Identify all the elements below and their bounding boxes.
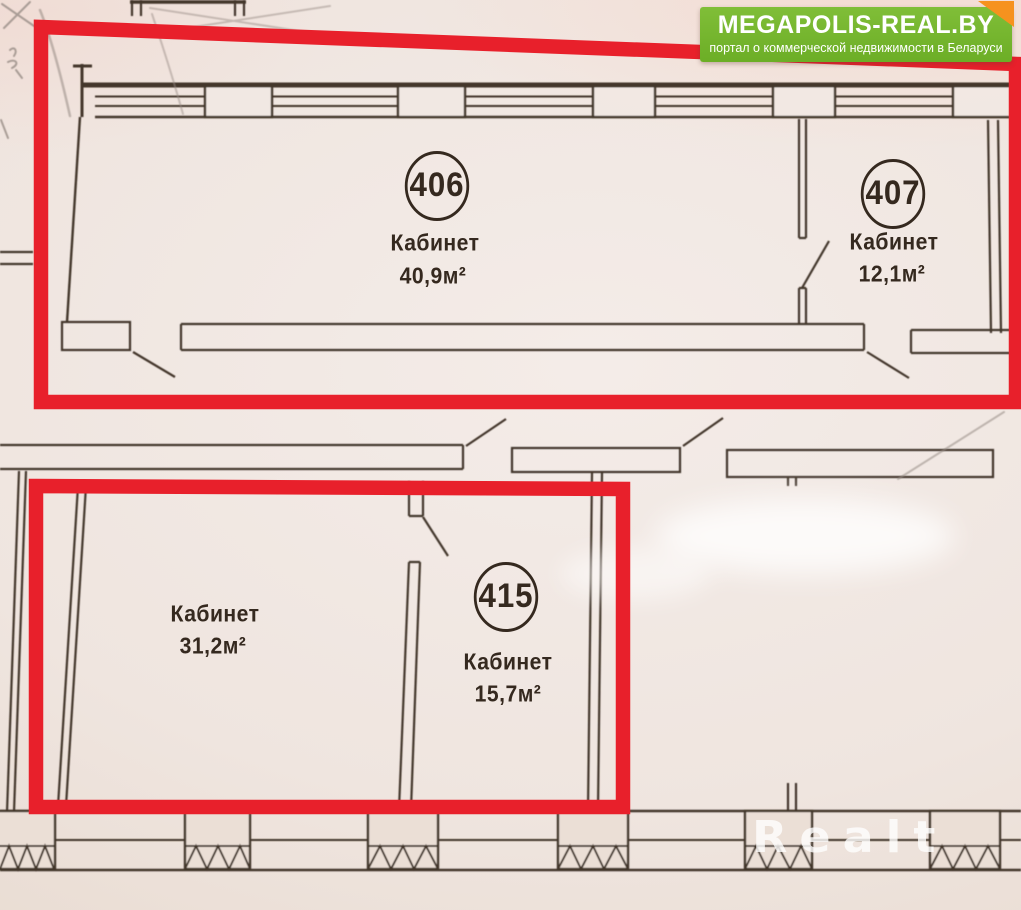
highlight-box-bottom xyxy=(36,486,623,807)
room-406-number: 406 xyxy=(405,151,469,221)
room-415-name: Кабинет xyxy=(464,649,553,676)
logo-subtitle: портал о коммерческой недвижимости в Бел… xyxy=(700,41,1012,55)
room-406-area: 40,9м² xyxy=(400,263,467,290)
room-407-area: 12,1м² xyxy=(859,261,926,288)
room-31-2-name: Кабинет xyxy=(171,601,260,628)
highlight-overlay xyxy=(0,0,1021,910)
room-407-number: 407 xyxy=(861,159,925,229)
room-406-name: Кабинет xyxy=(391,230,480,257)
room-415-area: 15,7м² xyxy=(475,681,542,708)
fold-corner-icon xyxy=(978,1,1014,27)
logo-title: MEGAPOLIS-REAL.BY xyxy=(700,11,1012,40)
room-31-2-area: 31,2м² xyxy=(180,633,247,660)
room-407-name: Кабинет xyxy=(850,229,939,256)
floor-plan-photo: 406 Кабинет 40,9м² 407 Кабинет 12,1м² 41… xyxy=(0,0,1021,910)
site-logo: MEGAPOLIS-REAL.BY портал о коммерческой … xyxy=(700,7,1012,62)
room-415-number: 415 xyxy=(474,562,538,632)
realt-watermark: Realt xyxy=(752,811,947,862)
